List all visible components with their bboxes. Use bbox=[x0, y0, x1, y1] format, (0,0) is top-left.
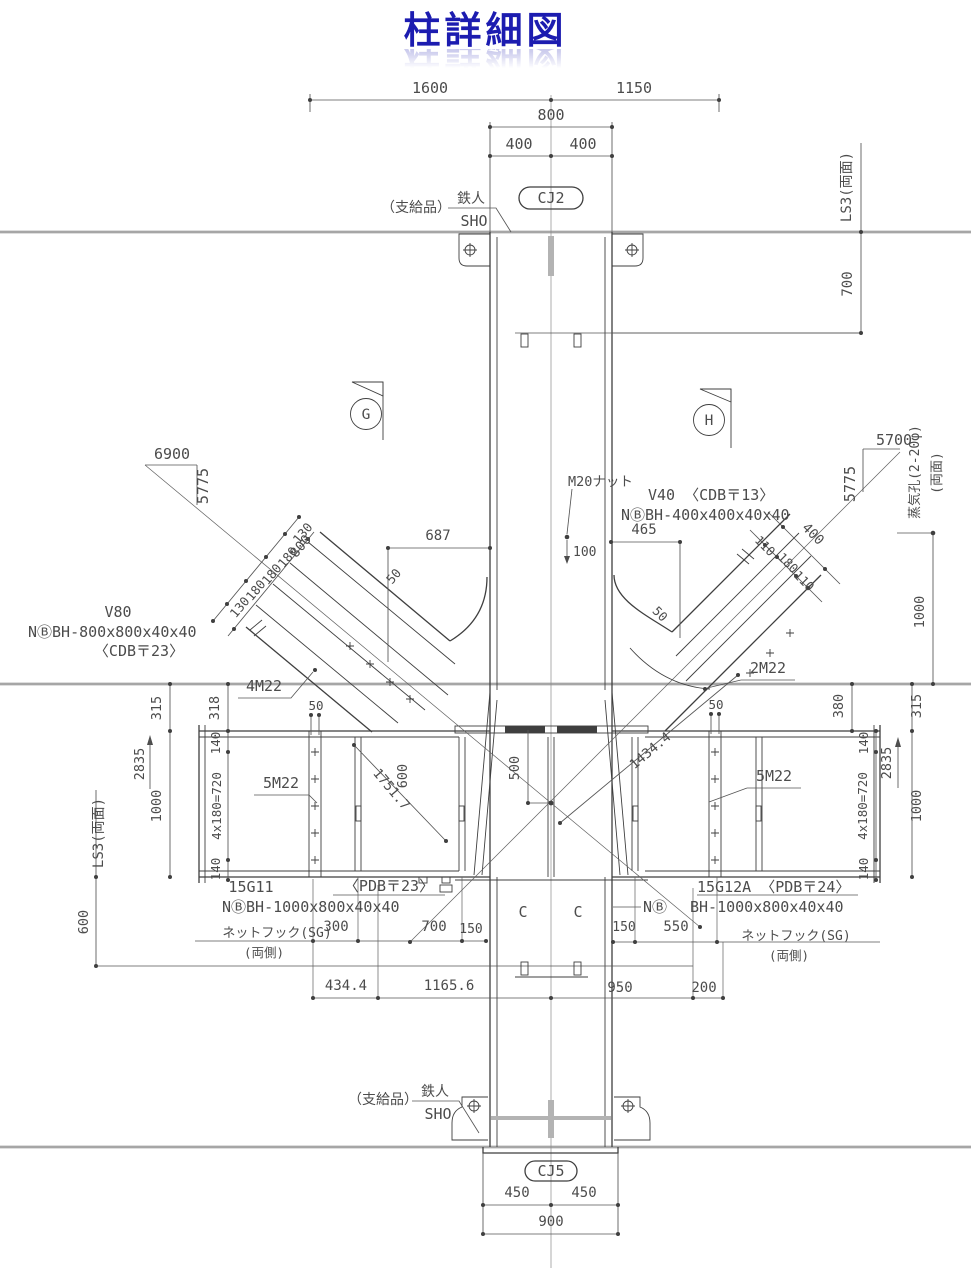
dim-2835-left: 2835 bbox=[132, 748, 148, 781]
dimension-dots bbox=[94, 98, 935, 1236]
girder-right-name-plate: 15G12A 〈PDB〒24〉 bbox=[697, 878, 850, 896]
column-detail-drawing: 1600 1150 800 400 400 CJ2 （支給品） 鉄人 SHO L… bbox=[0, 0, 971, 1272]
top-erection-brackets bbox=[459, 234, 861, 347]
girder-right-n-mark: NⒷ bbox=[643, 898, 667, 916]
dim-1165-6: 1165.6 bbox=[424, 978, 475, 994]
vent-hole-side: (両面) bbox=[930, 452, 945, 494]
slope-run-right: 5700 bbox=[876, 431, 912, 449]
girder-left-plate: 〈PDB〒23〉 bbox=[344, 877, 434, 895]
bolt-marks-5m22-right bbox=[711, 748, 719, 864]
mark-cj5: CJ5 bbox=[537, 1162, 564, 1180]
v40-name-plate: V40 〈CDB〒13〉 bbox=[648, 486, 774, 504]
mid-dimension-lines bbox=[388, 542, 680, 662]
v80-name: V80 bbox=[104, 603, 131, 621]
drawing-sheet: 柱詳細図 柱詳細図 bbox=[0, 0, 971, 1272]
dim-140-top-right: 140 bbox=[856, 732, 871, 755]
weld-tick-left bbox=[250, 620, 266, 636]
label-m20-nut: M20ナット bbox=[568, 474, 633, 490]
dim-400-left: 400 bbox=[505, 135, 532, 153]
dim-1600: 1600 bbox=[412, 79, 448, 97]
slope-rise-right: 5775 bbox=[841, 466, 859, 502]
dim-200: 200 bbox=[691, 980, 716, 996]
brace-right-seg-1: 110 bbox=[752, 533, 779, 560]
maker-name-top: 鉄人 bbox=[457, 191, 485, 207]
dim-500: 500 bbox=[507, 756, 523, 780]
brace-right-edge-50: 50 bbox=[650, 603, 671, 624]
net-hook-side-left: (両側) bbox=[244, 945, 284, 960]
ls3-label-left: LS3(両面) bbox=[91, 798, 107, 868]
dim-687: 687 bbox=[425, 528, 450, 544]
v80-size: NⒷBH-800x800x40x40 bbox=[28, 623, 197, 641]
v40-size: NⒷBH-400x400x40x40 bbox=[621, 506, 790, 524]
dim-1000-vent: 1000 bbox=[912, 596, 928, 629]
maker-name-bottom: 鉄人 bbox=[421, 1084, 449, 1100]
section-letter-g: G bbox=[362, 407, 371, 423]
dim-150-right: 150 bbox=[612, 920, 635, 935]
dim-300: 300 bbox=[323, 919, 348, 935]
bolt-group-5m22-right: 5M22 bbox=[756, 767, 792, 785]
dim-140-bot-left: 140 bbox=[208, 858, 223, 881]
maker-sub-bottom: SHO bbox=[424, 1105, 451, 1123]
dim-140-bot-right: 140 bbox=[856, 858, 871, 881]
brace-right-overall: 400 bbox=[799, 520, 828, 549]
dim-50-right: 50 bbox=[708, 697, 723, 712]
slope-triangle-left bbox=[145, 465, 197, 505]
dim-400-right: 400 bbox=[569, 135, 596, 153]
dim-diag-1434: 1434.4 bbox=[627, 729, 675, 773]
v80-plate: 〈CDB〒23〉 bbox=[94, 642, 184, 660]
dim-450-left: 450 bbox=[504, 1185, 529, 1201]
slope-rise-left: 5775 bbox=[194, 468, 212, 504]
bolt-marks-5m22-left bbox=[311, 748, 319, 864]
splice-plate-mark bbox=[548, 236, 554, 276]
girder-left-name: 15G11 bbox=[228, 878, 273, 896]
slope-run-left: 6900 bbox=[154, 445, 190, 463]
dim-50-left: 50 bbox=[308, 698, 323, 713]
dim-720-right: 4x180=720 bbox=[855, 772, 870, 840]
dim-140-top-left: 140 bbox=[208, 732, 223, 755]
weld-mark-c-right: C bbox=[573, 903, 582, 921]
dim-150-left: 150 bbox=[459, 922, 482, 937]
brace-left-edge-50: 50 bbox=[383, 566, 404, 587]
maker-sub-top: SHO bbox=[460, 212, 487, 230]
mark-cj2: CJ2 bbox=[537, 189, 564, 207]
supply-note-bottom: （支給品） bbox=[348, 1092, 418, 1108]
girder-left-15g11 bbox=[199, 725, 490, 892]
girder-left-size: NⒷBH-1000x800x40x40 bbox=[222, 898, 400, 916]
floor-lines bbox=[0, 232, 971, 1147]
dim-800-top: 800 bbox=[537, 106, 564, 124]
girder-right-size: BH-1000x800x40x40 bbox=[690, 898, 844, 916]
dim-465: 465 bbox=[631, 522, 656, 538]
dim-1000-right: 1000 bbox=[909, 790, 925, 823]
section-letter-h: H bbox=[705, 413, 714, 429]
net-hook-side-right: (両側) bbox=[769, 948, 809, 963]
dim-315-left: 315 bbox=[149, 696, 165, 720]
dim-434-4: 434.4 bbox=[325, 978, 367, 994]
bolt-group-4m22: 4M22 bbox=[246, 677, 282, 695]
dim-100: 100 bbox=[573, 545, 596, 560]
weld-mark-c-left: C bbox=[518, 903, 527, 921]
weld-tick-right bbox=[737, 549, 754, 564]
bolt-group-2m22: 2M22 bbox=[750, 659, 786, 677]
supply-note-top: （支給品） bbox=[381, 200, 451, 216]
dim-315-right: 315 bbox=[909, 694, 925, 718]
net-hook-right: ネットフック(SG) bbox=[741, 929, 850, 944]
dim-2835-right: 2835 bbox=[879, 747, 895, 780]
net-hook-left: ネットフック(SG) bbox=[222, 926, 331, 941]
dim-900: 900 bbox=[538, 1214, 563, 1230]
dim-600-left: 600 bbox=[76, 910, 92, 934]
dim-700-vert: 700 bbox=[840, 271, 856, 296]
dim-720-left: 4x180=720 bbox=[209, 772, 224, 840]
dim-700-girder: 700 bbox=[421, 919, 446, 935]
dim-1150: 1150 bbox=[616, 79, 652, 97]
dim-380-right: 380 bbox=[831, 694, 847, 718]
bolt-group-5m22-left: 5M22 bbox=[263, 774, 299, 792]
ls3-label-top: LS3(両面) bbox=[839, 152, 855, 222]
dim-550: 550 bbox=[663, 919, 688, 935]
vent-hole-label: 蒸気孔(2-20φ) bbox=[907, 425, 923, 519]
dim-1000-left: 1000 bbox=[149, 790, 165, 823]
column-outline bbox=[455, 232, 648, 1147]
dim-950: 950 bbox=[607, 980, 632, 996]
joint-dimension-lines bbox=[311, 675, 738, 841]
dim-318-left: 318 bbox=[207, 696, 223, 720]
dim-450-right: 450 bbox=[571, 1185, 596, 1201]
